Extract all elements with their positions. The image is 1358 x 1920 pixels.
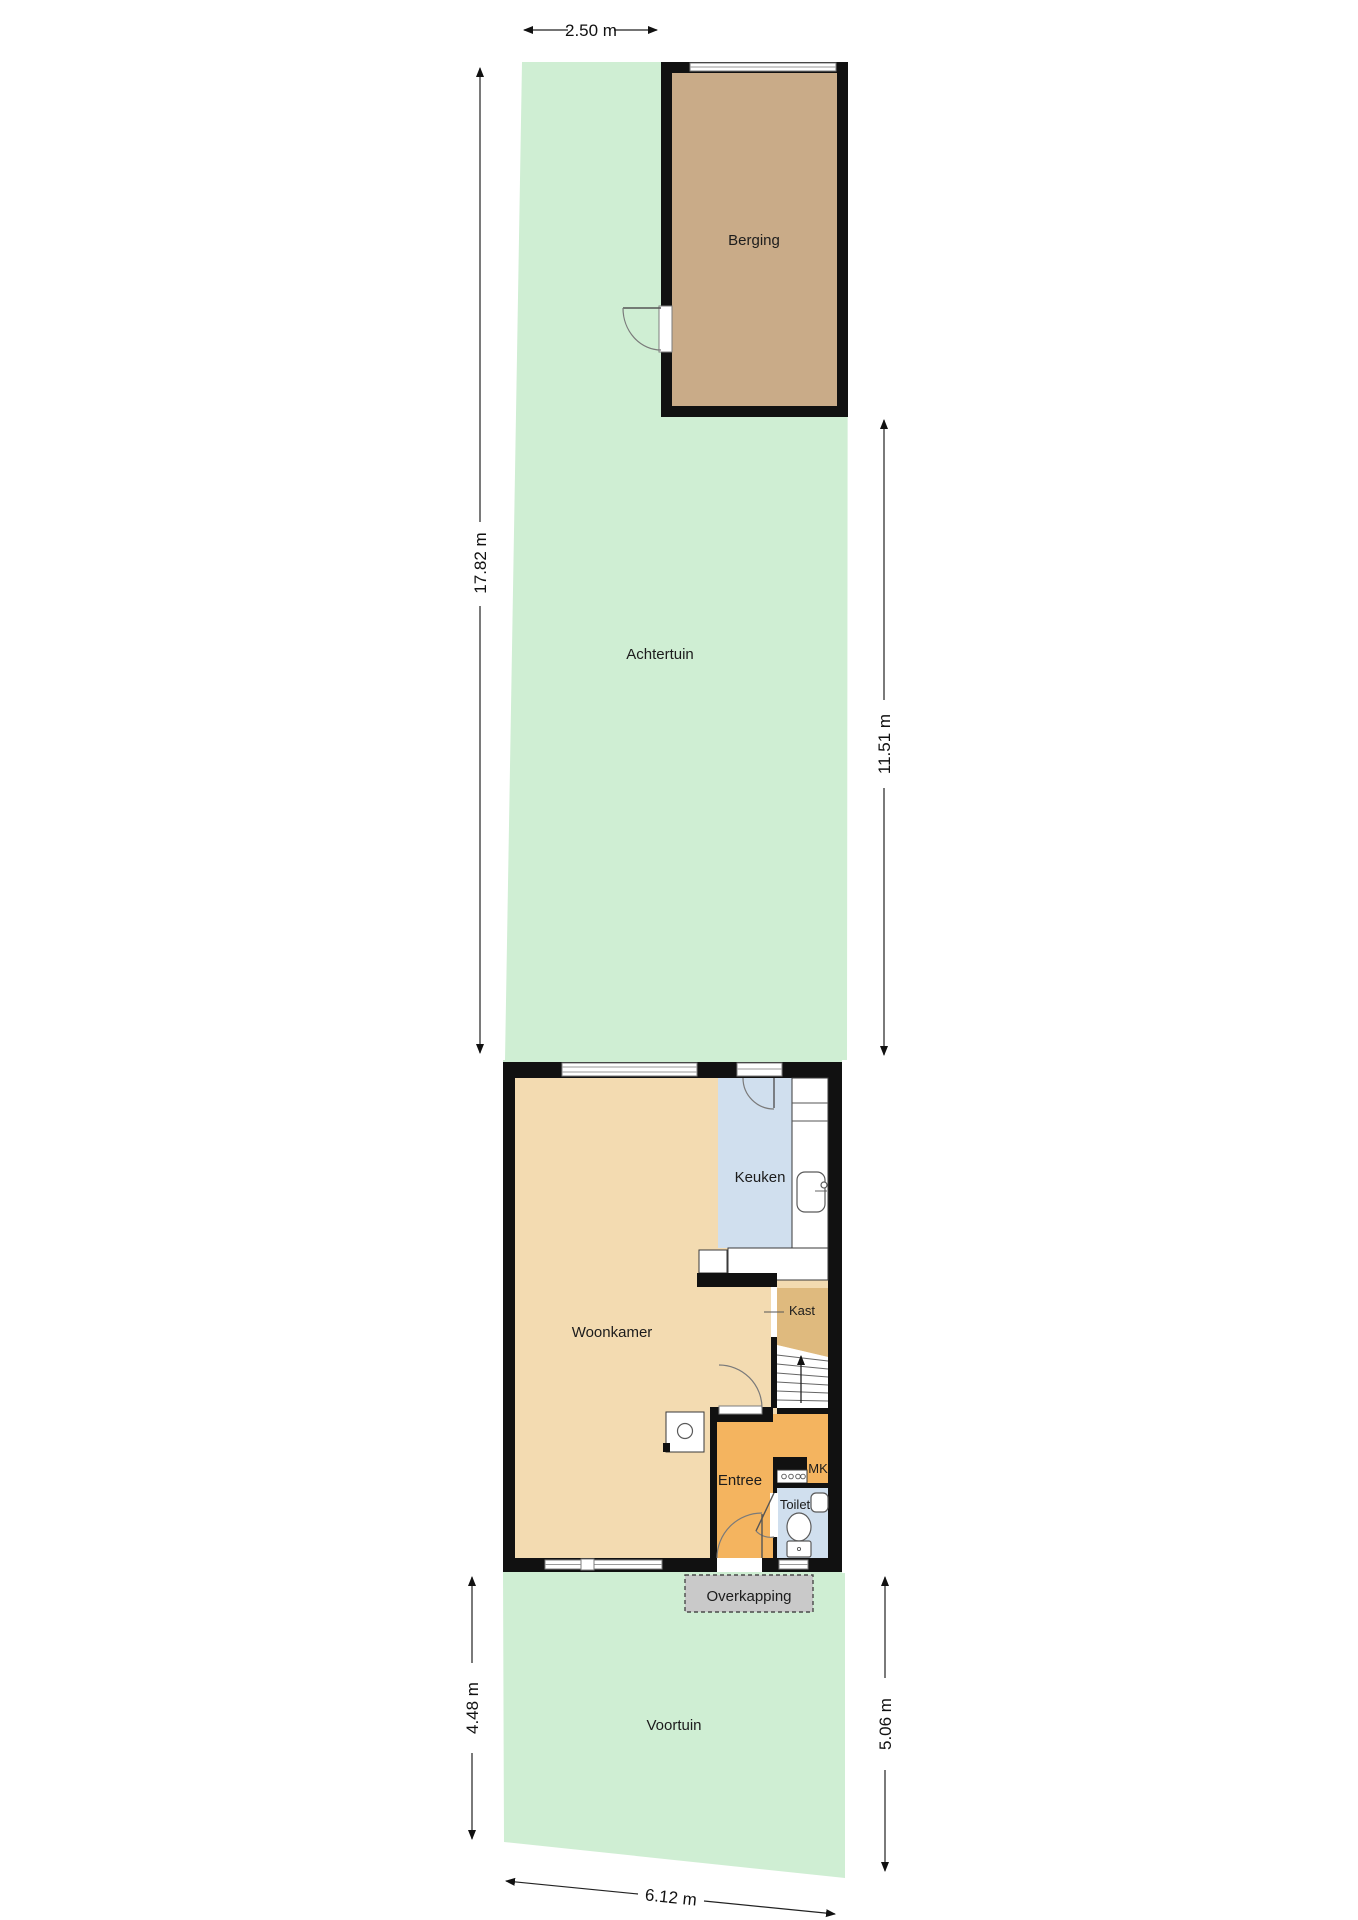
dim-bottom-line-left — [506, 1881, 638, 1894]
sink-faucet-knob — [821, 1182, 827, 1188]
entree-floor-upper — [773, 1414, 828, 1457]
wall-woonkamer-stairs — [771, 1337, 777, 1408]
dim-backleft-label: 17.82 m — [471, 532, 490, 593]
achtertuin-label: Achtertuin — [626, 646, 694, 663]
toilet-tank — [787, 1541, 811, 1557]
dim-frontleft-label: 4.48 m — [463, 1682, 482, 1734]
kast-label: Kast — [789, 1303, 815, 1318]
wall-mk — [773, 1457, 807, 1470]
wall-toilet-top — [775, 1483, 828, 1488]
berging-door-opening — [659, 306, 672, 352]
counter-block — [699, 1250, 727, 1273]
stove-burner — [678, 1424, 693, 1439]
overkapping-label: Overkapping — [706, 1588, 791, 1605]
entree-door — [719, 1406, 762, 1414]
dim-backright-label: 11.51 m — [875, 714, 894, 774]
wall-woonkamer-kast — [697, 1273, 777, 1287]
dim-bottom-label: 6.12 m — [644, 1885, 698, 1909]
kitchen-counter — [792, 1078, 828, 1248]
toilet-sink — [811, 1493, 828, 1512]
mk-label: MK — [808, 1461, 828, 1476]
toilet-label: Toilet — [780, 1497, 811, 1512]
keuken-label: Keuken — [735, 1169, 786, 1186]
stove-flue — [663, 1443, 670, 1452]
front-window-seam — [581, 1559, 594, 1570]
berging-label: Berging — [728, 232, 780, 249]
dim-top-label: 2.50 m — [565, 21, 617, 40]
keuken-floor — [718, 1078, 792, 1248]
rear-window — [562, 1063, 697, 1076]
voortuin-label: Voortuin — [646, 1717, 701, 1734]
house: MK Keuken Woonkamer — [503, 1062, 842, 1572]
toilet-bowl — [787, 1513, 811, 1541]
dim-bottom-line-right — [704, 1901, 835, 1914]
dim-frontright-label: 5.06 m — [876, 1698, 895, 1750]
wall-entree-left — [710, 1407, 717, 1558]
wall-stairs-entree — [777, 1408, 828, 1414]
front-door-opening — [717, 1558, 762, 1572]
woonkamer-label: Woonkamer — [572, 1324, 653, 1341]
overkapping-canopy: Overkapping — [685, 1575, 813, 1612]
kast-floor — [777, 1288, 828, 1357]
entree-label: Entree — [718, 1472, 762, 1489]
floorplan-page: Achtertuin Voortuin Berging — [0, 0, 1358, 1920]
kitchen-sink — [797, 1172, 825, 1212]
floorplan-canvas: Achtertuin Voortuin Berging — [0, 0, 1358, 1920]
